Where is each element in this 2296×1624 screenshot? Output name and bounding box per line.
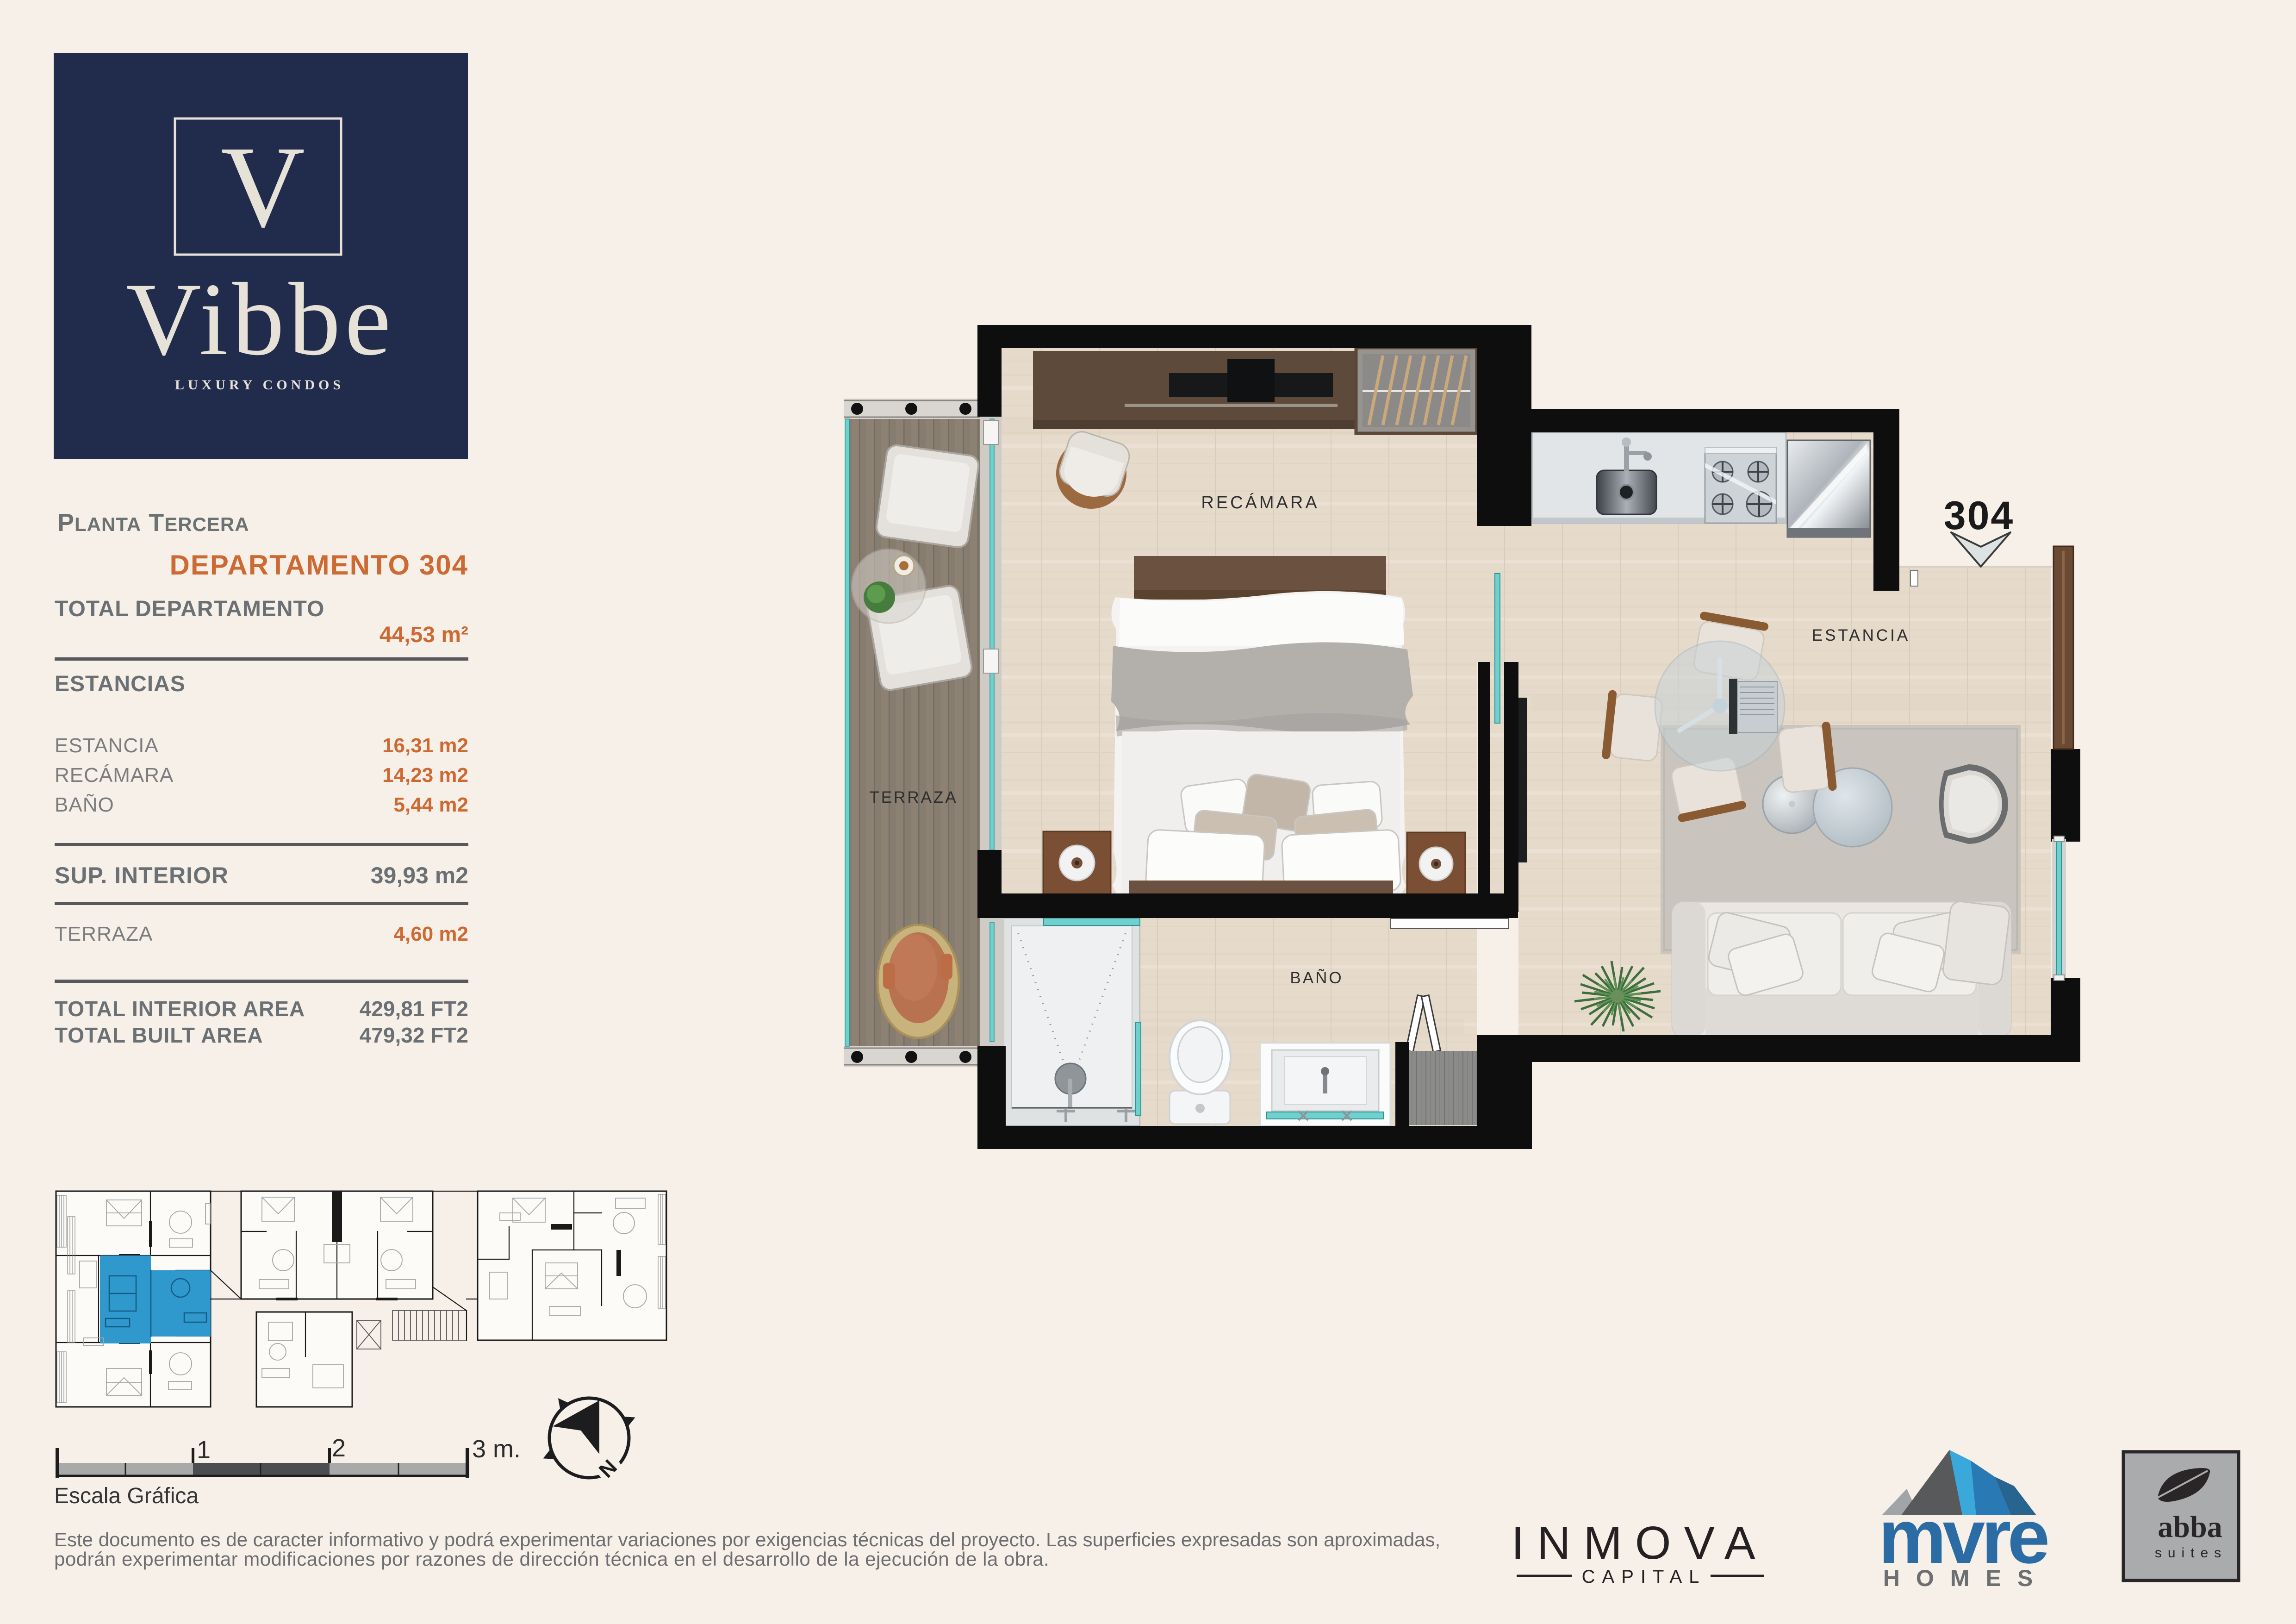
svg-text:3 m.: 3 m. [472, 1435, 521, 1463]
svg-text:2: 2 [332, 1434, 346, 1462]
svg-text:INMOVA: INMOVA [1511, 1517, 1768, 1569]
svg-text:1: 1 [197, 1436, 211, 1464]
svg-text:304: 304 [1944, 493, 2015, 538]
svg-text:HOMES: HOMES [1883, 1565, 2049, 1591]
svg-text:CAPITAL: CAPITAL [1582, 1567, 1706, 1587]
svg-text:ESTANCIA: ESTANCIA [1812, 626, 1910, 644]
svg-text:TERRAZA: TERRAZA [869, 788, 958, 806]
svg-text:suites: suites [2155, 1545, 2227, 1561]
svg-text:BAÑO: BAÑO [1290, 969, 1343, 987]
svg-text:abba: abba [2158, 1510, 2222, 1544]
svg-text:RECÁMARA: RECÁMARA [1201, 493, 1319, 512]
